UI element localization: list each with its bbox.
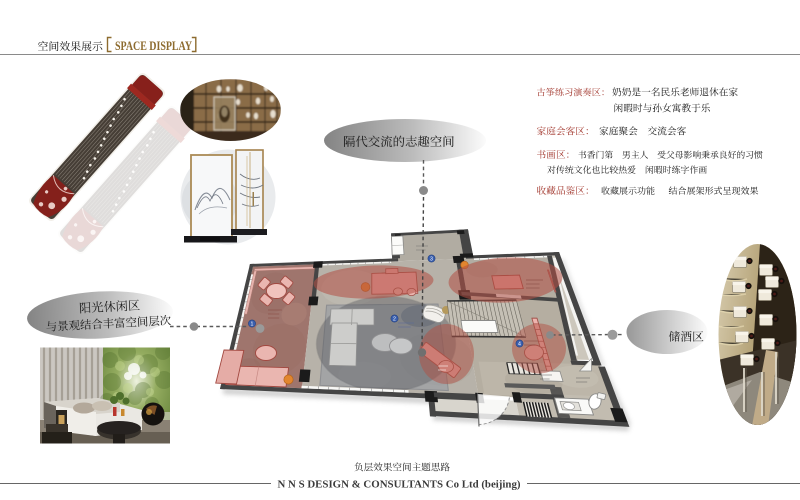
svg-text:2: 2	[393, 317, 396, 323]
svg-text:3: 3	[430, 257, 433, 263]
svg-text:SPACE DISPLAY: SPACE DISPLAY	[115, 39, 192, 53]
svg-text:4: 4	[518, 342, 521, 348]
svg-text:N N S DESIGN & CONSULTANTS Co: N N S DESIGN & CONSULTANTS Co Ltd (beiji…	[278, 479, 521, 491]
svg-text:1: 1	[251, 322, 254, 328]
